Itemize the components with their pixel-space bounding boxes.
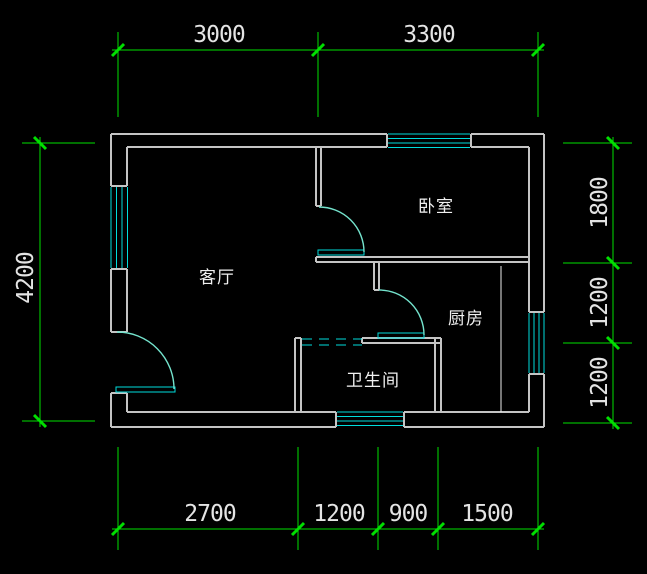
dim-left-4200: 4200 (13, 252, 39, 304)
bathroom-sliding-door (302, 339, 362, 345)
room-label-bedroom: 卧室 (418, 197, 454, 217)
dimension-bottom: 2700 1200 900 1500 (112, 447, 544, 550)
interior-walls (295, 147, 529, 412)
dim-top-3000: 3000 (193, 22, 245, 48)
window-left-living-room (111, 187, 128, 268)
window-right-kitchen (529, 313, 544, 373)
dim-bottom-2700: 2700 (184, 501, 236, 527)
bedroom-door (318, 207, 364, 255)
dimension-top: 3000 3300 (112, 22, 544, 117)
dim-bottom-1500: 1500 (461, 501, 513, 527)
room-label-kitchen: 厨房 (448, 309, 484, 329)
window-bottom-bathroom (337, 412, 403, 426)
dimension-right: 1800 1200 1200 (563, 137, 632, 429)
dim-bottom-900: 900 (389, 501, 428, 527)
window-top-bedroom (388, 134, 470, 148)
dim-right-1200-upper: 1200 (587, 277, 613, 329)
dimension-left: 4200 (13, 137, 95, 427)
dim-right-1200-lower: 1200 (587, 357, 613, 409)
floor-plan-canvas: 客厅 卧室 厨房 卫生间 3000 3300 2700 1200 900 150… (0, 0, 647, 574)
kitchen-door (378, 290, 424, 338)
dim-right-1800: 1800 (587, 177, 613, 229)
room-label-living: 客厅 (199, 268, 235, 288)
outer-walls (111, 134, 544, 427)
dim-top-3300: 3300 (403, 22, 455, 48)
dim-bottom-1200: 1200 (313, 501, 365, 527)
floor-plan-drawing: 客厅 卧室 厨房 卫生间 3000 3300 2700 1200 900 150… (0, 0, 647, 574)
entry-door (116, 332, 175, 392)
room-label-bathroom: 卫生间 (346, 371, 400, 391)
